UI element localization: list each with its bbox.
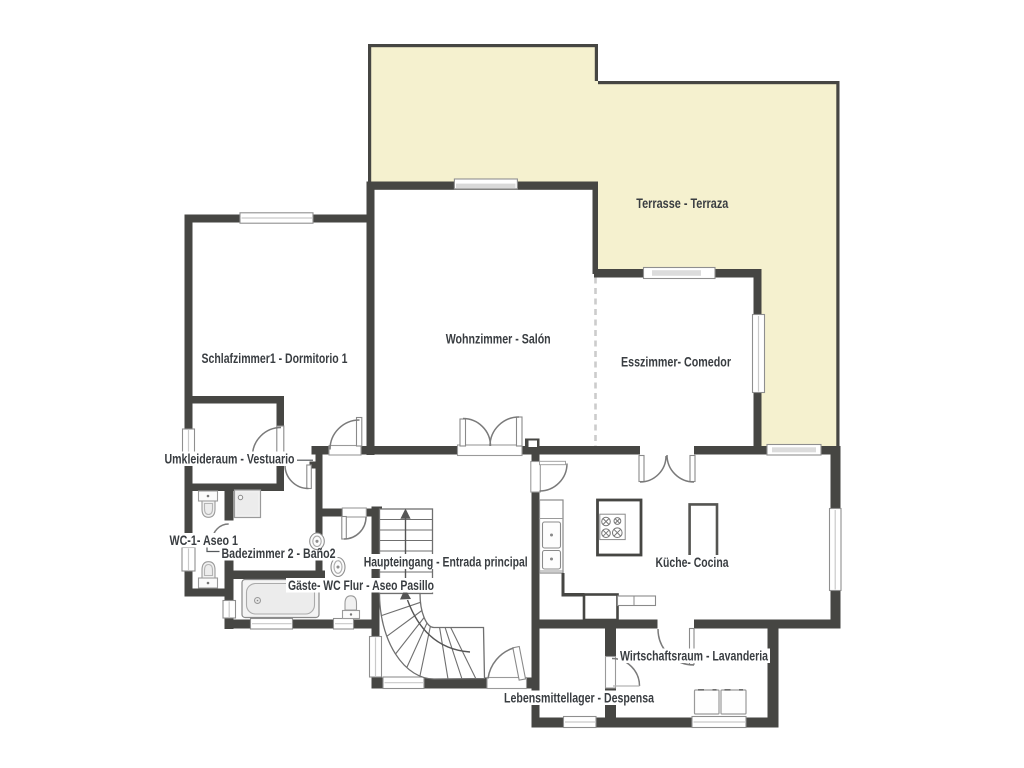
svg-text:Wirtschaftsraum - Lavanderia: Wirtschaftsraum - Lavanderia [620, 649, 768, 664]
svg-text:Wohnzimmer - Salón: Wohnzimmer - Salón [446, 332, 551, 347]
svg-text:Lebensmittellager - Despensa: Lebensmittellager - Despensa [504, 691, 654, 706]
svg-text:Küche- Cocina: Küche- Cocina [656, 555, 729, 570]
svg-text:Schlafzimmer1 - Dormitorio 1: Schlafzimmer1 - Dormitorio 1 [202, 351, 348, 366]
svg-text:Haupteingang - Entrada princip: Haupteingang - Entrada principal [364, 555, 528, 570]
svg-text:Umkleideraum - Vestuario: Umkleideraum - Vestuario [165, 452, 295, 467]
svg-text:Terrasse - Terraza: Terrasse - Terraza [636, 196, 728, 211]
svg-text:Badezimmer 2 - Baño2: Badezimmer 2 - Baño2 [222, 546, 336, 561]
svg-text:Gäste- WC Flur - Aseo Pasillo: Gäste- WC Flur - Aseo Pasillo [288, 578, 434, 593]
svg-text:Esszimmer- Comedor: Esszimmer- Comedor [621, 355, 732, 370]
